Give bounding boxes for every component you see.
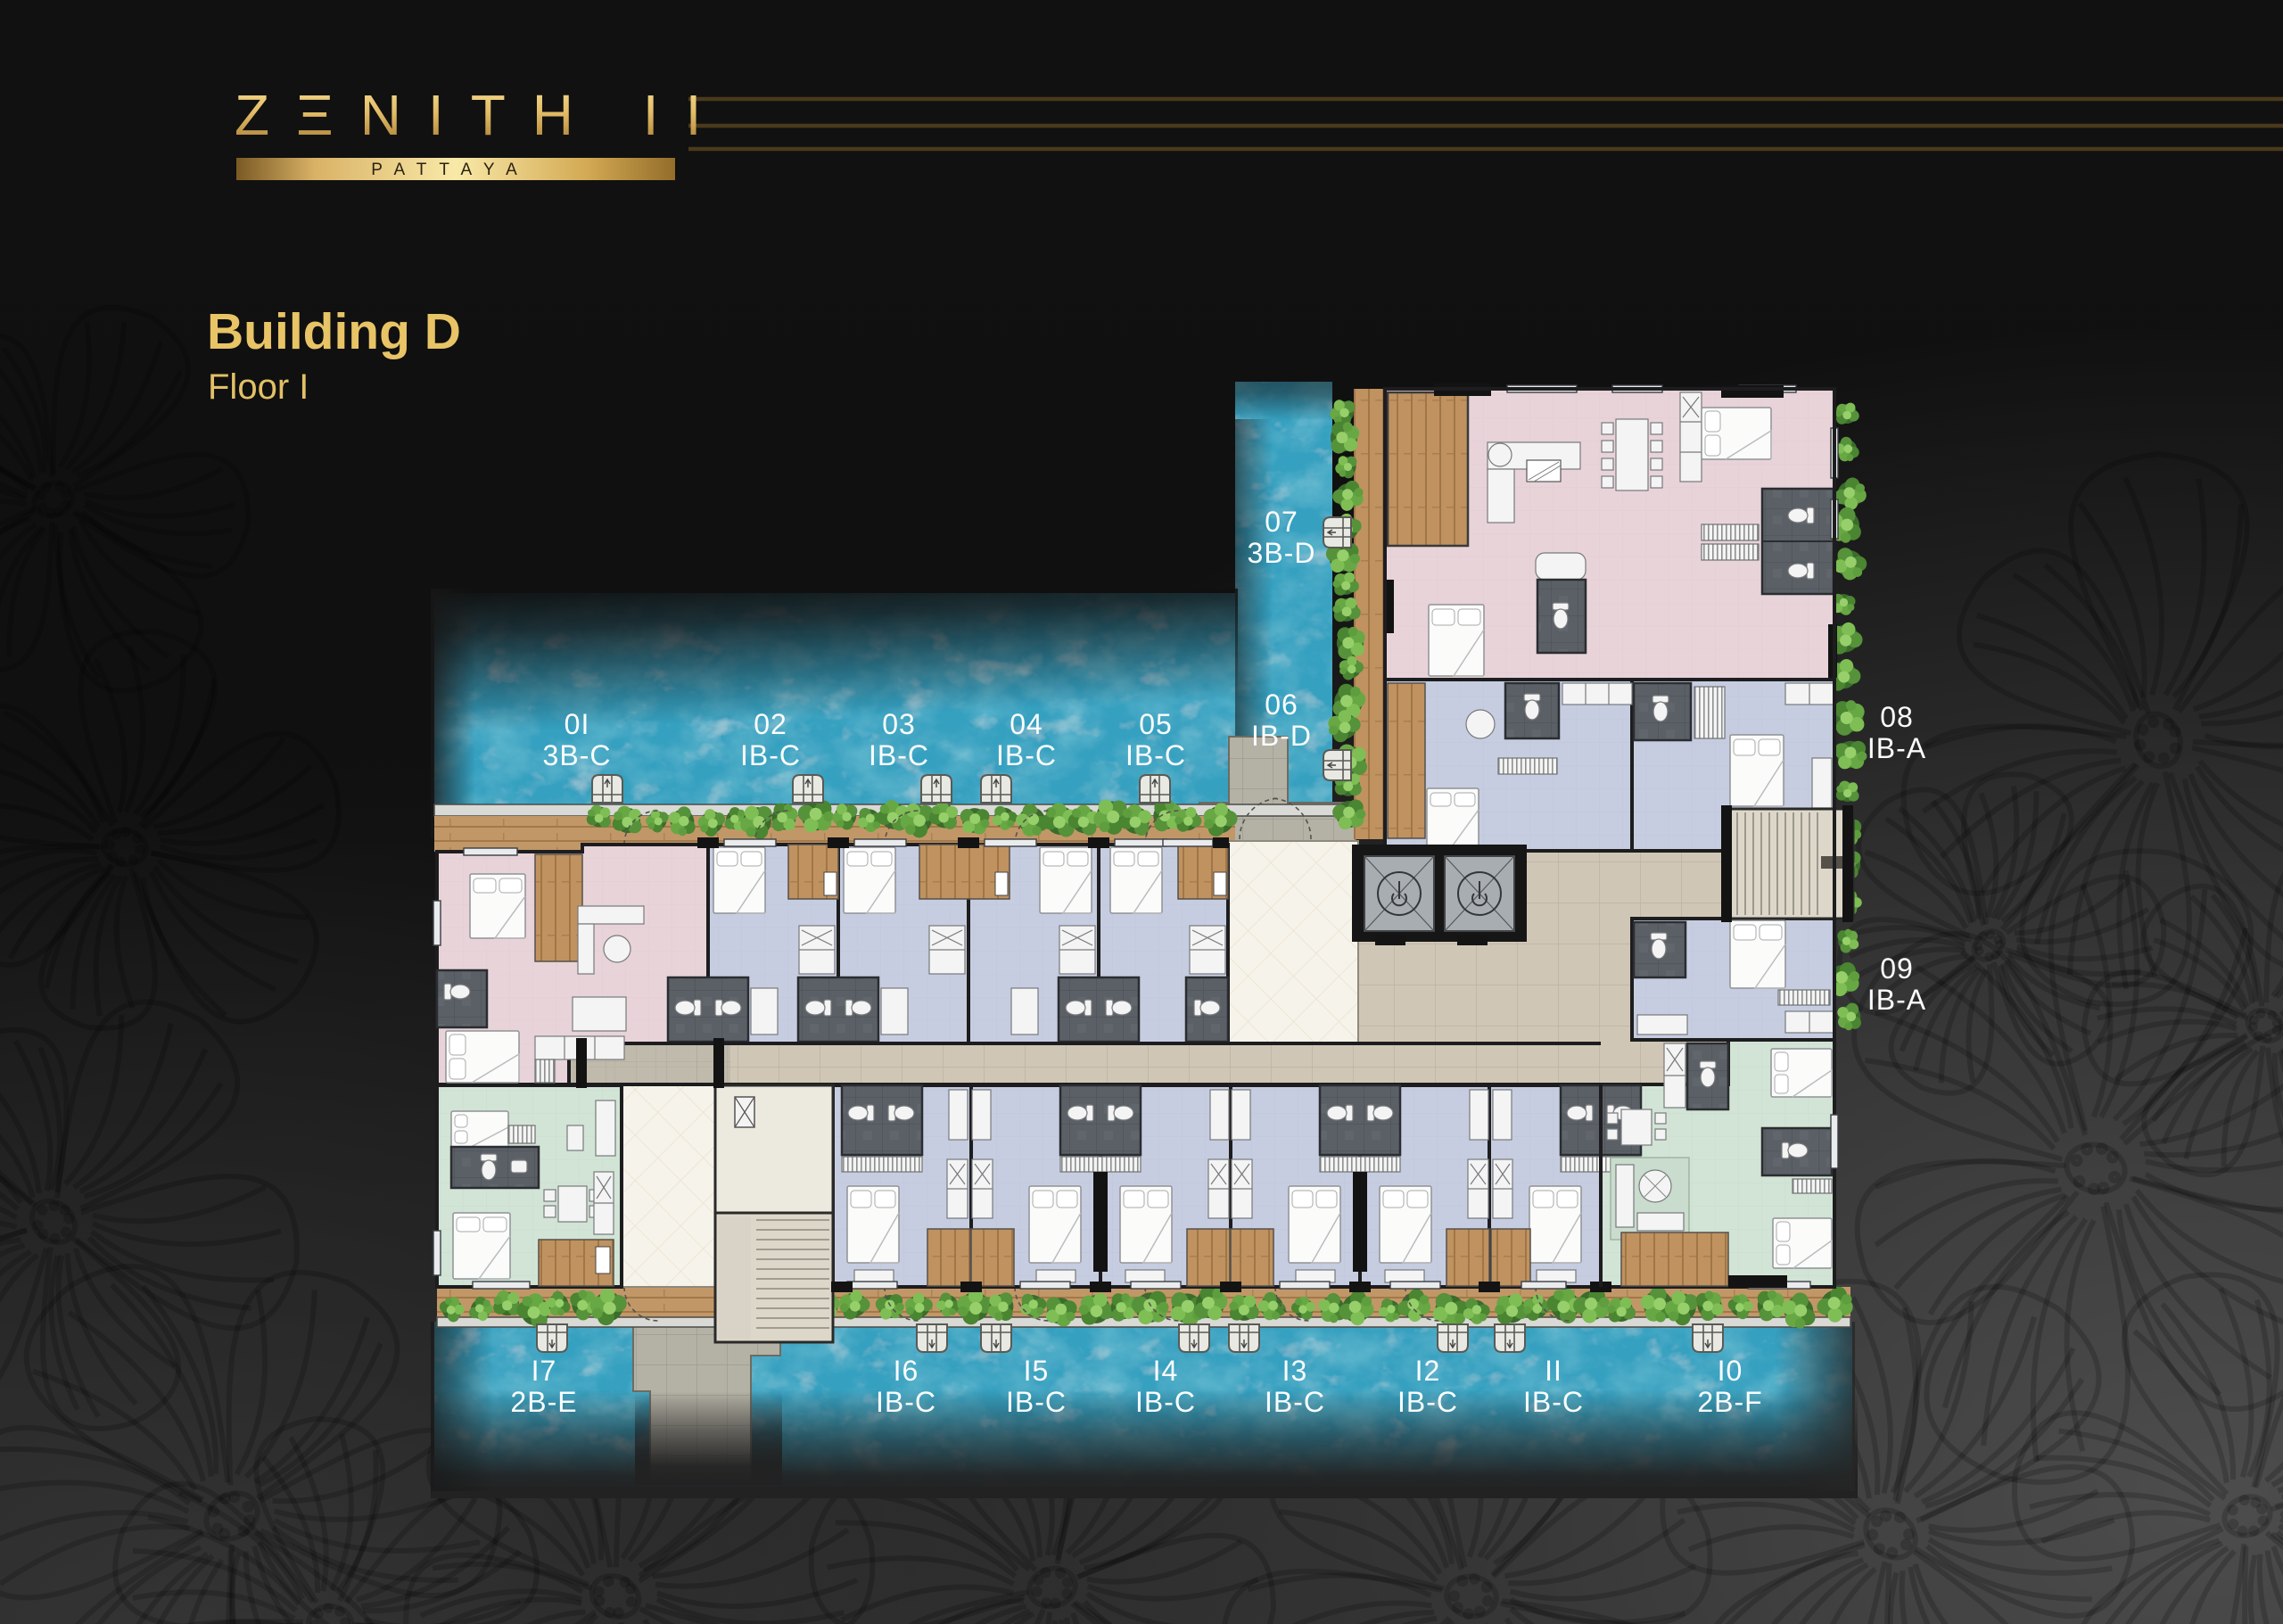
svg-text:Floor I: Floor I	[208, 367, 309, 407]
svg-text:03: 03	[882, 708, 916, 740]
svg-text:IB-C: IB-C	[740, 739, 801, 771]
svg-text:02: 02	[754, 708, 787, 740]
svg-text:09: 09	[1880, 952, 1914, 985]
svg-text:I0: I0	[1718, 1355, 1743, 1387]
svg-text:IB-C: IB-C	[1523, 1386, 1584, 1418]
svg-text:04: 04	[1010, 708, 1043, 740]
svg-text:08: 08	[1880, 701, 1914, 733]
svg-text:07: 07	[1265, 506, 1298, 538]
svg-text:IB-D: IB-D	[1251, 720, 1312, 752]
svg-text:IB-C: IB-C	[1125, 739, 1186, 771]
svg-text:II: II	[1545, 1355, 1562, 1387]
svg-text:IB-A: IB-A	[1867, 732, 1926, 764]
svg-text:0I: 0I	[565, 708, 590, 740]
svg-text:2B-E: 2B-E	[510, 1386, 577, 1418]
svg-text:3B-D: 3B-D	[1248, 537, 1316, 569]
svg-text:IB-C: IB-C	[996, 739, 1057, 771]
svg-text:2B-F: 2B-F	[1697, 1386, 1762, 1418]
svg-text:05: 05	[1139, 708, 1173, 740]
svg-text:ZΞNITH II: ZΞNITH II	[235, 83, 728, 147]
svg-text:IB-A: IB-A	[1867, 984, 1926, 1016]
svg-text:IB-C: IB-C	[1265, 1386, 1325, 1418]
svg-text:3B-C: 3B-C	[543, 739, 612, 771]
svg-text:I2: I2	[1415, 1355, 1441, 1387]
svg-text:Building D: Building D	[207, 303, 461, 360]
svg-text:IB-C: IB-C	[876, 1386, 936, 1418]
svg-text:06: 06	[1265, 688, 1298, 721]
svg-text:I3: I3	[1282, 1355, 1308, 1387]
svg-text:PATTAYA: PATTAYA	[371, 161, 530, 179]
svg-text:IB-C: IB-C	[1397, 1386, 1458, 1418]
svg-text:IB-C: IB-C	[869, 739, 929, 771]
svg-text:I6: I6	[894, 1355, 919, 1387]
svg-text:I5: I5	[1024, 1355, 1050, 1387]
svg-text:I4: I4	[1153, 1355, 1179, 1387]
svg-text:I7: I7	[532, 1355, 557, 1387]
svg-text:IB-C: IB-C	[1006, 1386, 1067, 1418]
svg-text:IB-C: IB-C	[1135, 1386, 1196, 1418]
